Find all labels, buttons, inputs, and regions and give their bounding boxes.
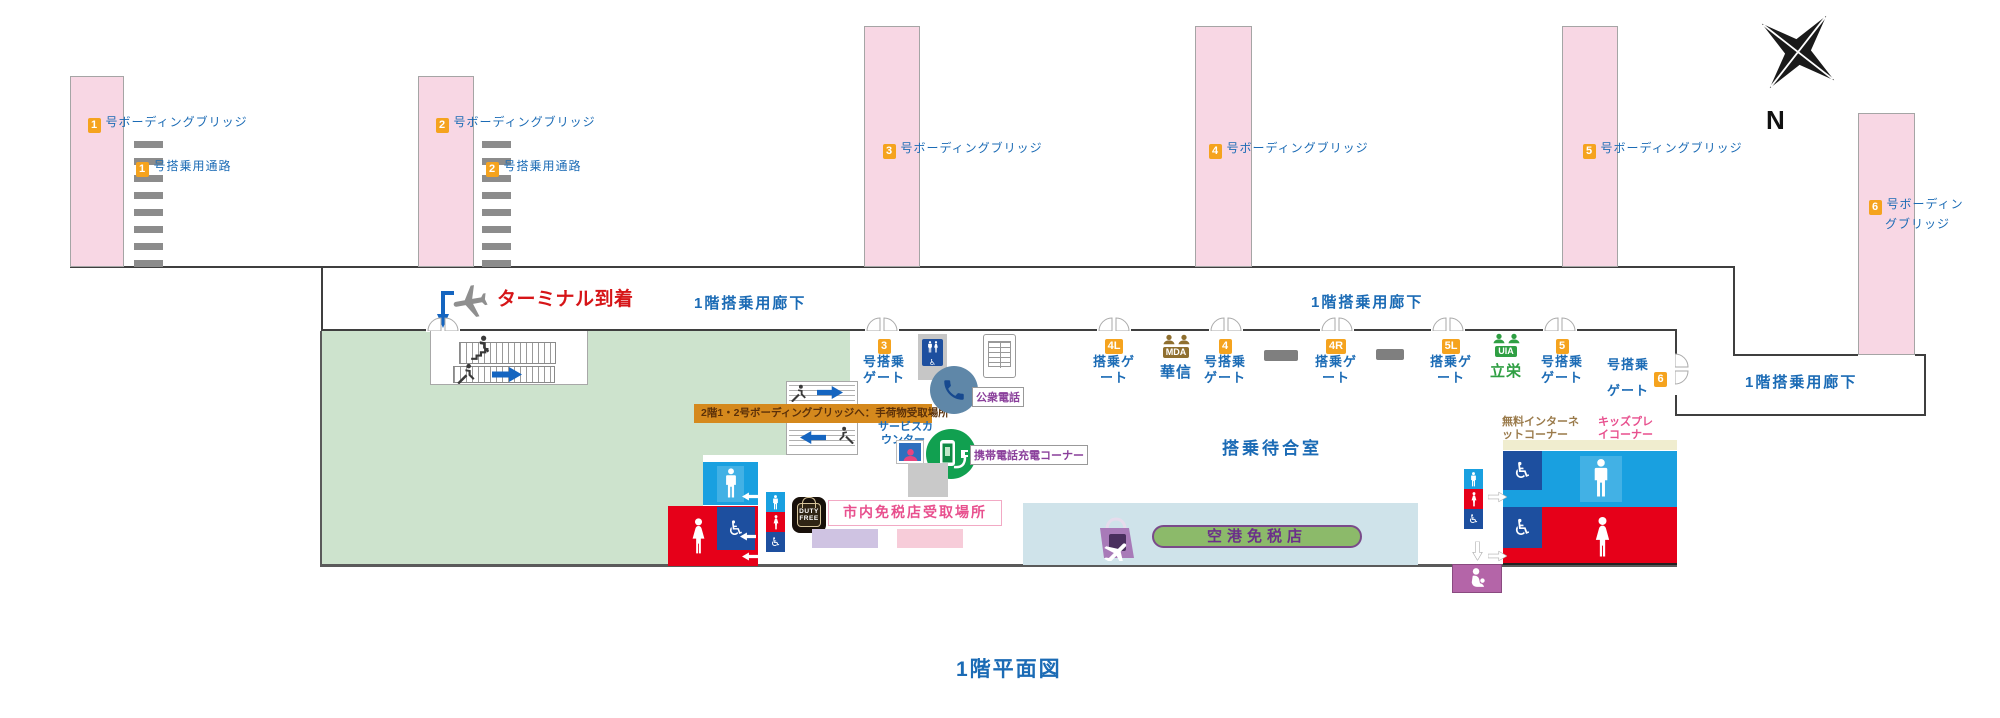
direction-arrow-right-icon bbox=[485, 367, 529, 382]
green-area-top-extension bbox=[703, 331, 850, 381]
airline-name: 華信 bbox=[1157, 361, 1195, 382]
gate-label-line2: ゲート bbox=[859, 370, 909, 386]
man-icon bbox=[1470, 472, 1477, 487]
gate-5L-door-icon bbox=[1432, 317, 1464, 331]
airline-uniair: UIA 立栄 bbox=[1487, 333, 1525, 381]
escalator-person-icon bbox=[456, 363, 477, 384]
bridge-number-badge: 6 bbox=[1869, 200, 1882, 215]
mens-toilet-right: ♿ bbox=[1503, 451, 1677, 507]
walkway-1-label: 1 号搭乗用通路 bbox=[136, 157, 231, 177]
wheelchair-icon: ♿ bbox=[1513, 460, 1533, 482]
wall-line-rc-top-a bbox=[1733, 354, 1858, 356]
walkway-number-badge: 2 bbox=[486, 162, 499, 177]
gate-label-line2: ート bbox=[1426, 370, 1476, 386]
service-counter-icon bbox=[897, 441, 923, 463]
page-title: 1階平面図 bbox=[956, 653, 1062, 683]
counter-pink bbox=[897, 529, 963, 548]
bridge-1-label: 1 号ボーディングブリッジ bbox=[88, 113, 248, 133]
gate-label-line1: 搭乗ゲ bbox=[1089, 354, 1139, 370]
terminal-arrival-label: ターミナル到着 bbox=[497, 284, 634, 311]
waiting-room-label: 搭乗待合室 bbox=[1222, 434, 1322, 459]
toilet-sign-stack-right: ♿ bbox=[1464, 469, 1483, 529]
counter-block bbox=[908, 463, 948, 497]
gate-5-label: 5 号搭乗 ゲート bbox=[1537, 336, 1587, 386]
gate-label-line1: 号搭乗 bbox=[1602, 357, 1654, 373]
gate-6-door-icon bbox=[1675, 353, 1689, 385]
arrow-right-outline-icon bbox=[1488, 550, 1507, 562]
woman-icon bbox=[1470, 492, 1478, 507]
gate-number-badge: 6 bbox=[1654, 372, 1667, 387]
bridge-number-badge: 4 bbox=[1209, 144, 1222, 159]
stairs-plan-icon bbox=[988, 341, 1011, 367]
arrow-right-outline-icon bbox=[1488, 491, 1507, 503]
airline-agents-icon bbox=[1487, 333, 1525, 345]
gate-label-line1: 号搭乗 bbox=[1537, 354, 1587, 370]
hall-label-right: 1階搭乗用廊下 bbox=[1745, 371, 1857, 392]
public-phone-circle bbox=[930, 366, 978, 414]
airport-dutyfree-label: 空港免税店 bbox=[1152, 525, 1362, 548]
man-icon bbox=[772, 495, 779, 510]
accessible-box: ♿ bbox=[1503, 451, 1542, 490]
phone-icon bbox=[941, 377, 967, 403]
arrival-door-icon bbox=[427, 317, 459, 331]
gate-number-badge: 3 bbox=[878, 339, 891, 354]
charging-corner-label: 携帯電話充電コーナー bbox=[970, 445, 1088, 465]
gate-label-line2: ゲート bbox=[1537, 370, 1587, 386]
gate-4L-label: 4L 搭乗ゲ ート bbox=[1089, 336, 1139, 386]
direction-arrow-right-icon bbox=[810, 386, 850, 399]
wall-line-rc-bottom bbox=[1675, 414, 1926, 416]
nursing-icon bbox=[1466, 567, 1489, 590]
city-dutyfree-pickup-label: 市内免税店受取場所 bbox=[828, 500, 1002, 526]
wall-line-rc-top-b bbox=[1915, 354, 1926, 356]
gate-label-line2: ート bbox=[1089, 370, 1139, 386]
woman-icon bbox=[690, 518, 707, 555]
bridge-3-label: 3 号ボーディングブリッジ bbox=[883, 139, 1043, 159]
gate-4-door-icon bbox=[1210, 317, 1242, 331]
gate-label-line2: ゲート bbox=[1602, 383, 1654, 399]
gate-label-line1: 搭乗ゲ bbox=[1311, 354, 1361, 370]
compass-rose-icon bbox=[1733, 0, 1862, 117]
wheelchair-icon: ♿ bbox=[922, 358, 943, 367]
stairs-plan-box bbox=[983, 334, 1016, 378]
gate-label-line2: ゲート bbox=[1200, 370, 1250, 386]
airline-code-badge: MDA bbox=[1163, 347, 1190, 358]
compass-north-label: N bbox=[1766, 105, 1785, 136]
hall-label-2: 1階搭乗用廊下 bbox=[1311, 291, 1423, 312]
gate-number-badge: 4R bbox=[1326, 339, 1346, 354]
bridge-2-label: 2 号ボーディングブリッジ bbox=[436, 113, 596, 133]
gate-label-line1: 号搭乗 bbox=[859, 354, 909, 370]
gate-4L-door-icon bbox=[1098, 317, 1130, 331]
bridge-6-label: 6 号ボーディン グブリッジ bbox=[1869, 195, 1964, 232]
man-icon bbox=[1592, 458, 1610, 499]
gate-number-badge: 4L bbox=[1105, 339, 1124, 354]
toilet-sign-stack-left: ♿ bbox=[766, 492, 785, 552]
wall-line-rc-right bbox=[1924, 354, 1926, 416]
boarding-bridge-6 bbox=[1858, 113, 1915, 355]
shopping-bag-icon bbox=[1093, 513, 1139, 561]
gate-5-door-icon bbox=[1544, 317, 1576, 331]
gate-3-door-icon bbox=[866, 317, 898, 331]
arrow-left-icon bbox=[742, 551, 758, 562]
bench bbox=[1376, 349, 1404, 360]
airport-dutyfree-area: 空港免税店 bbox=[1023, 503, 1418, 565]
airline-code-badge: UIA bbox=[1495, 346, 1517, 357]
public-phone-label: 公衆電話 bbox=[972, 387, 1024, 407]
gate-4R-label: 4R 搭乗ゲ ート bbox=[1311, 336, 1361, 386]
bridge-number-badge: 3 bbox=[883, 144, 896, 159]
stairs-person-icon bbox=[469, 335, 495, 361]
mens-toilet-left bbox=[703, 462, 758, 505]
bridge-5-label: 5 号ボーディングブリッジ bbox=[1583, 139, 1743, 159]
floorplan-canvas: 1 号ボーディングブリッジ 2 号ボーディングブリッジ 3 号ボーディングブリッ… bbox=[0, 0, 2000, 718]
gate-number-badge: 5L bbox=[1442, 339, 1461, 354]
duty-free-bag-icon: DUTY FREE bbox=[797, 503, 821, 527]
internet-corner-label: 無料インターネ ットコーナー bbox=[1502, 416, 1579, 441]
kids-area-strip bbox=[1503, 440, 1677, 450]
arrow-left-icon bbox=[740, 531, 756, 542]
bridge-number-badge: 1 bbox=[88, 118, 101, 133]
wall-line-strip-left bbox=[321, 266, 323, 331]
accessible-box: ♿ bbox=[1503, 507, 1542, 548]
bench bbox=[1264, 350, 1298, 361]
walkway-2-label: 2 号搭乗用通路 bbox=[486, 157, 581, 177]
bridge-number-badge: 2 bbox=[436, 118, 449, 133]
airline-agents-icon bbox=[1157, 334, 1195, 346]
gate-number-badge: 5 bbox=[1556, 339, 1569, 354]
gate-number-badge: 4 bbox=[1219, 339, 1232, 354]
wheelchair-icon: ♿ bbox=[766, 532, 785, 552]
gate-label-line1: 号搭乗 bbox=[1200, 354, 1250, 370]
duty-free-logo: DUTY FREE bbox=[792, 497, 826, 533]
bridge-4-label: 4 号ボーディングブリッジ bbox=[1209, 139, 1369, 159]
woman-icon bbox=[1593, 516, 1612, 559]
wall-line-green-left bbox=[320, 331, 322, 567]
gate-label-line1: 搭乗ゲ bbox=[1426, 354, 1476, 370]
gate-5L-label: 5L 搭乗ゲ ート bbox=[1426, 336, 1476, 386]
womens-toilet-right: ♿ bbox=[1503, 507, 1677, 565]
direction-arrow-left-icon bbox=[793, 431, 833, 444]
arrow-down-outline-icon bbox=[1472, 542, 1484, 561]
kids-corner-label: キッズプレ イコーナー bbox=[1598, 416, 1653, 441]
restroom-sign-icon: ♿ bbox=[922, 339, 943, 366]
bridge-number-badge: 5 bbox=[1583, 144, 1596, 159]
attendant-icon bbox=[903, 449, 918, 461]
airline-name: 立栄 bbox=[1487, 360, 1525, 381]
accessible-toilet-left: ♿ bbox=[717, 507, 755, 550]
wall-line-connector bbox=[1733, 266, 1735, 356]
wheelchair-icon: ♿ bbox=[1464, 509, 1483, 529]
gate-4R-door-icon bbox=[1321, 317, 1353, 331]
escalator-person-icon bbox=[790, 384, 808, 402]
gate-3-label: 3 号搭乗 ゲート bbox=[859, 336, 909, 386]
wheelchair-icon: ♿ bbox=[1513, 517, 1533, 539]
airline-mandarin: MDA 華信 bbox=[1157, 334, 1195, 382]
woman-icon bbox=[772, 515, 780, 530]
nursing-room bbox=[1452, 564, 1502, 593]
counter-purple bbox=[812, 529, 878, 548]
arrow-left-icon bbox=[742, 491, 758, 502]
escalator-person-icon bbox=[837, 426, 855, 444]
gate-4-label: 4 号搭乗 ゲート bbox=[1200, 336, 1250, 386]
hall-label-1: 1階搭乗用廊下 bbox=[694, 292, 806, 313]
stairwell-arrival bbox=[430, 331, 588, 385]
gate-6-label: 号搭乗 ゲート bbox=[1602, 357, 1654, 399]
walkway-number-badge: 1 bbox=[136, 162, 149, 177]
boarding-bridge-2 bbox=[418, 76, 474, 267]
boarding-bridge-1 bbox=[70, 76, 124, 267]
gate-label-line2: ート bbox=[1311, 370, 1361, 386]
